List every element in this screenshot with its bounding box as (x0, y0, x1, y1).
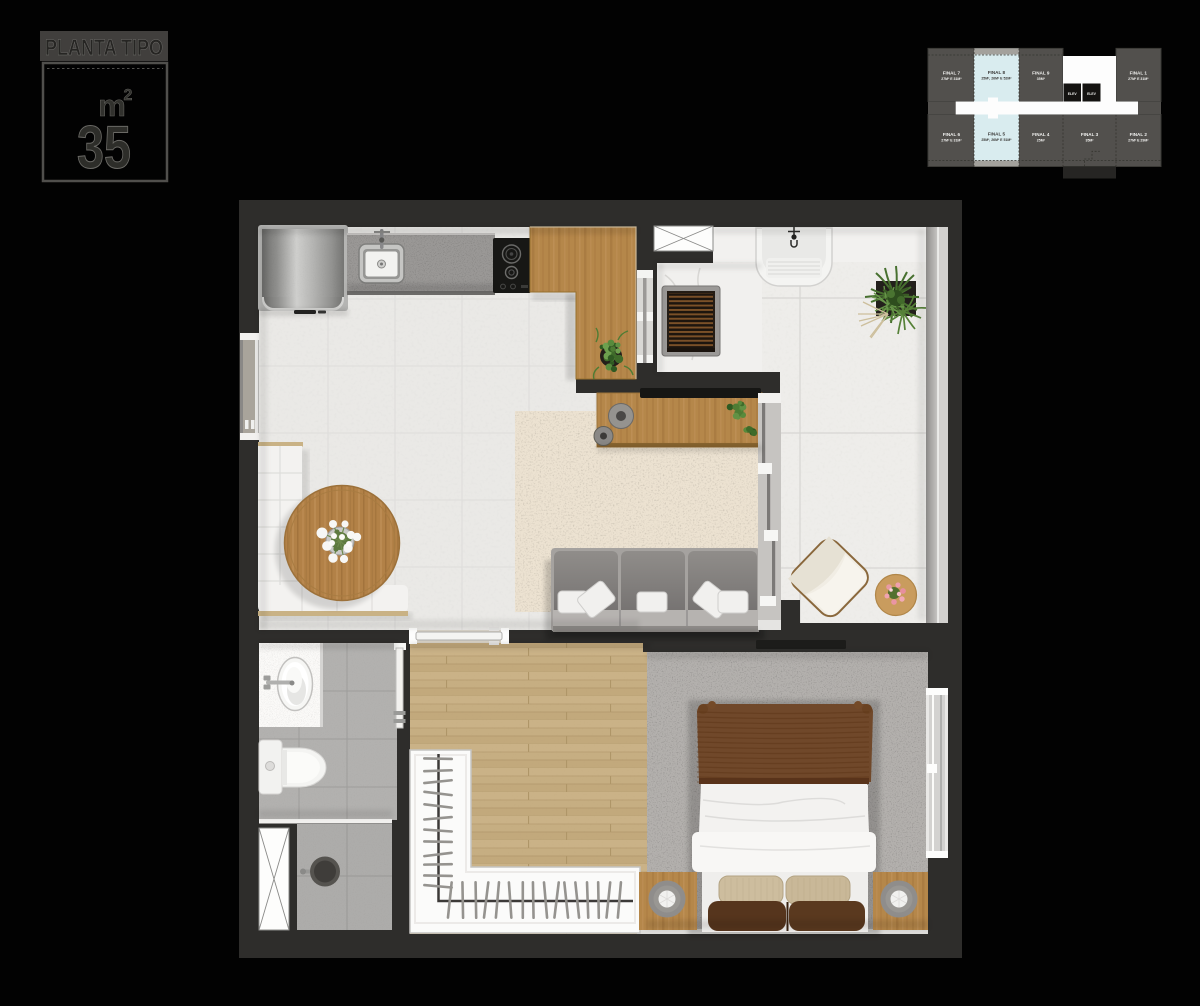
svg-text:27M² E 29M²: 27M² E 29M² (1128, 139, 1149, 143)
svg-text:PLANTA TIPO: PLANTA TIPO (45, 35, 163, 60)
svg-text:27M² E 31M²: 27M² E 31M² (1128, 77, 1149, 81)
svg-text:FINAL 5: FINAL 5 (988, 132, 1006, 137)
svg-text:35M²: 35M² (1086, 139, 1095, 143)
svg-text:25M²: 25M² (1037, 139, 1046, 143)
svg-text:35: 35 (77, 114, 131, 181)
svg-text:2: 2 (124, 87, 133, 104)
svg-text:FINAL 2: FINAL 2 (1130, 132, 1148, 137)
svg-text:ELEV: ELEV (1087, 92, 1097, 96)
svg-text:FINAL 8: FINAL 8 (988, 70, 1006, 75)
svg-text:FINAL 4: FINAL 4 (1032, 132, 1050, 137)
svg-text:25M², 26M² E 52M²: 25M², 26M² E 52M² (981, 77, 1012, 81)
svg-text:35M²: 35M² (1037, 77, 1046, 81)
svg-text:FINAL 1: FINAL 1 (1130, 71, 1148, 76)
svg-text:ELEV: ELEV (1068, 92, 1078, 96)
svg-text:FINAL 6: FINAL 6 (943, 132, 961, 137)
svg-text:FINAL 7: FINAL 7 (943, 71, 961, 76)
svg-text:FINAL 3: FINAL 3 (1081, 132, 1099, 137)
svg-text:27M² E 31M²: 27M² E 31M² (941, 77, 962, 81)
svg-text:27M² E 31M²: 27M² E 31M² (941, 139, 962, 143)
svg-text:25M², 26M² E 51M²: 25M², 26M² E 51M² (981, 138, 1012, 142)
svg-text:FINAL 9: FINAL 9 (1032, 71, 1050, 76)
